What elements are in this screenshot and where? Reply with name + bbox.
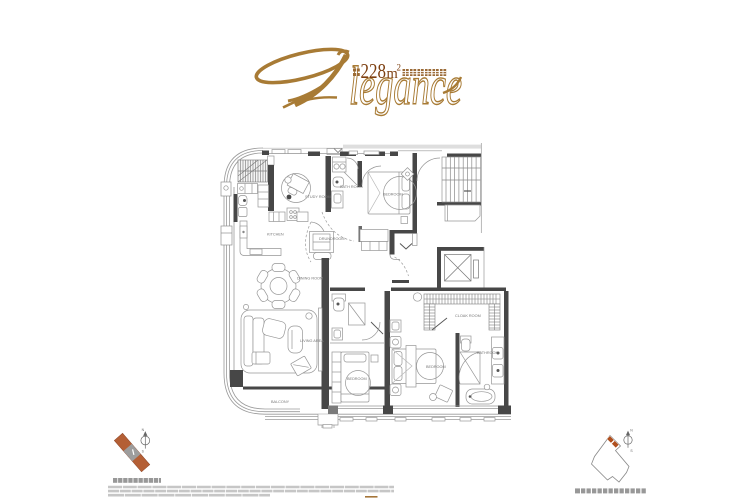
svg-text:228: 228: [361, 59, 387, 83]
svg-text:BEDROOM: BEDROOM: [383, 193, 403, 197]
svg-text:S: S: [630, 449, 633, 453]
svg-text:CLOAK ROOM: CLOAK ROOM: [455, 314, 481, 318]
svg-text:BATH ROOM: BATH ROOM: [340, 185, 363, 189]
svg-text:N: N: [630, 429, 633, 433]
svg-text:BALCONY: BALCONY: [271, 400, 290, 404]
svg-text:S: S: [142, 450, 145, 454]
svg-text:KITCHEN: KITCHEN: [267, 233, 284, 237]
svg-text:DINING ROOM: DINING ROOM: [297, 277, 323, 281]
svg-text:BEDROOM: BEDROOM: [426, 365, 446, 369]
svg-text:N: N: [142, 428, 145, 432]
svg-text:BEDROOM: BEDROOM: [347, 377, 367, 381]
svg-text:LIVING AREA: LIVING AREA: [300, 339, 324, 343]
svg-text:DRUNDROOM: DRUNDROOM: [319, 237, 345, 241]
svg-text:BATHROOM: BATHROOM: [477, 351, 499, 355]
svg-text:STUDY ROOM: STUDY ROOM: [305, 195, 331, 199]
svg-text:2: 2: [397, 63, 402, 73]
